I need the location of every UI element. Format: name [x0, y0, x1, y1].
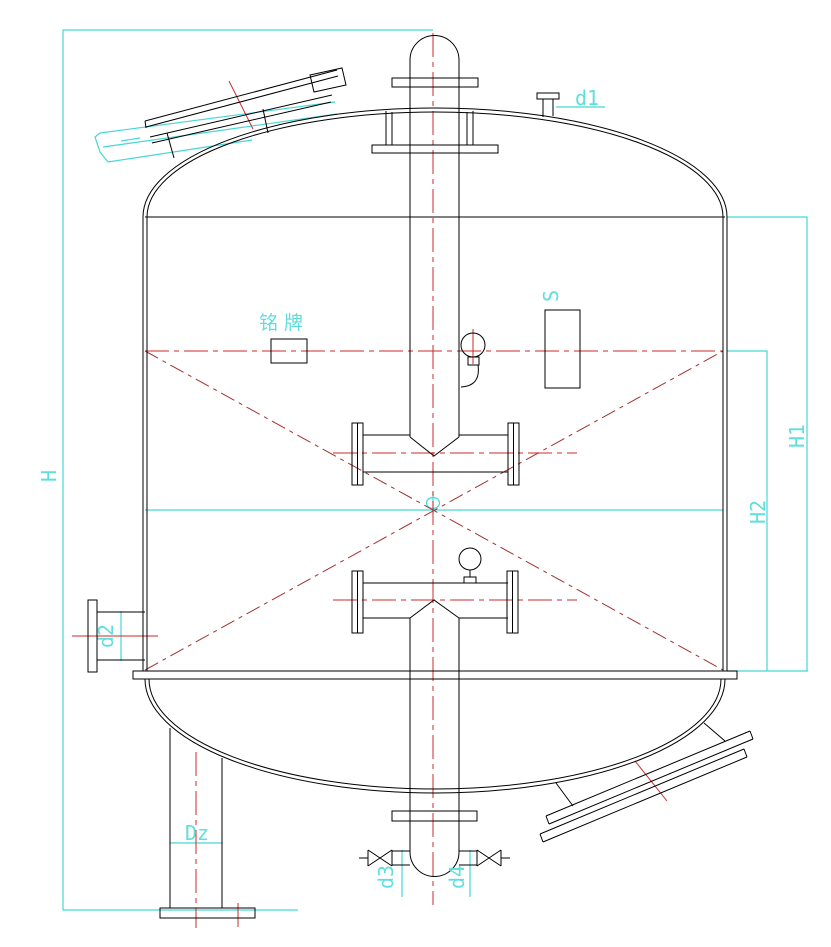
bracket-bottom-right [540, 723, 753, 842]
manhole-hidden-outline [95, 102, 337, 162]
lower-distributor [352, 571, 518, 633]
pipe-dome-cap [410, 36, 459, 61]
head-mounting-pad [372, 111, 498, 153]
d2-label: d2 [94, 624, 118, 648]
annotation-labels: 铭牌 S d1 d2 d3 d4 H H1 H2 Dz [37, 86, 809, 889]
top-head [143, 108, 727, 217]
bottom-outlet-pipe [392, 618, 477, 876]
dim-h-line [63, 30, 433, 910]
sight-glass [545, 310, 580, 388]
manhole-cover-flange [310, 68, 346, 92]
dim-h1-label: H1 [785, 424, 809, 448]
d4-label: d4 [445, 865, 469, 889]
dim-dz-label: Dz [185, 821, 209, 845]
lower-cone [410, 600, 459, 618]
nameplate-label: 铭牌 [259, 312, 309, 334]
bottom-pipe-flange [392, 811, 477, 821]
manhole-centerline [229, 81, 253, 129]
pressure-gauge-lower [459, 548, 481, 583]
dim-h-label: H [37, 470, 61, 482]
vessel-outline [88, 36, 753, 919]
nozzle-d1 [537, 93, 559, 117]
sight-glass-label: S [539, 290, 563, 302]
shell-walls [143, 217, 727, 671]
cad-canvas: 铭牌 S d1 d2 d3 d4 H H1 H2 Dz [0, 0, 831, 947]
center-pipe [372, 36, 498, 438]
upper-distributor [352, 423, 519, 485]
d3-label: d3 [374, 865, 398, 889]
dim-h2-label: H2 [746, 500, 770, 524]
vessel-drawing: 铭牌 S d1 d2 d3 d4 H H1 H2 Dz [0, 0, 831, 947]
pipe-top-flange [392, 78, 478, 87]
d1-label: d1 [575, 86, 599, 110]
valve-d4 [459, 850, 510, 866]
